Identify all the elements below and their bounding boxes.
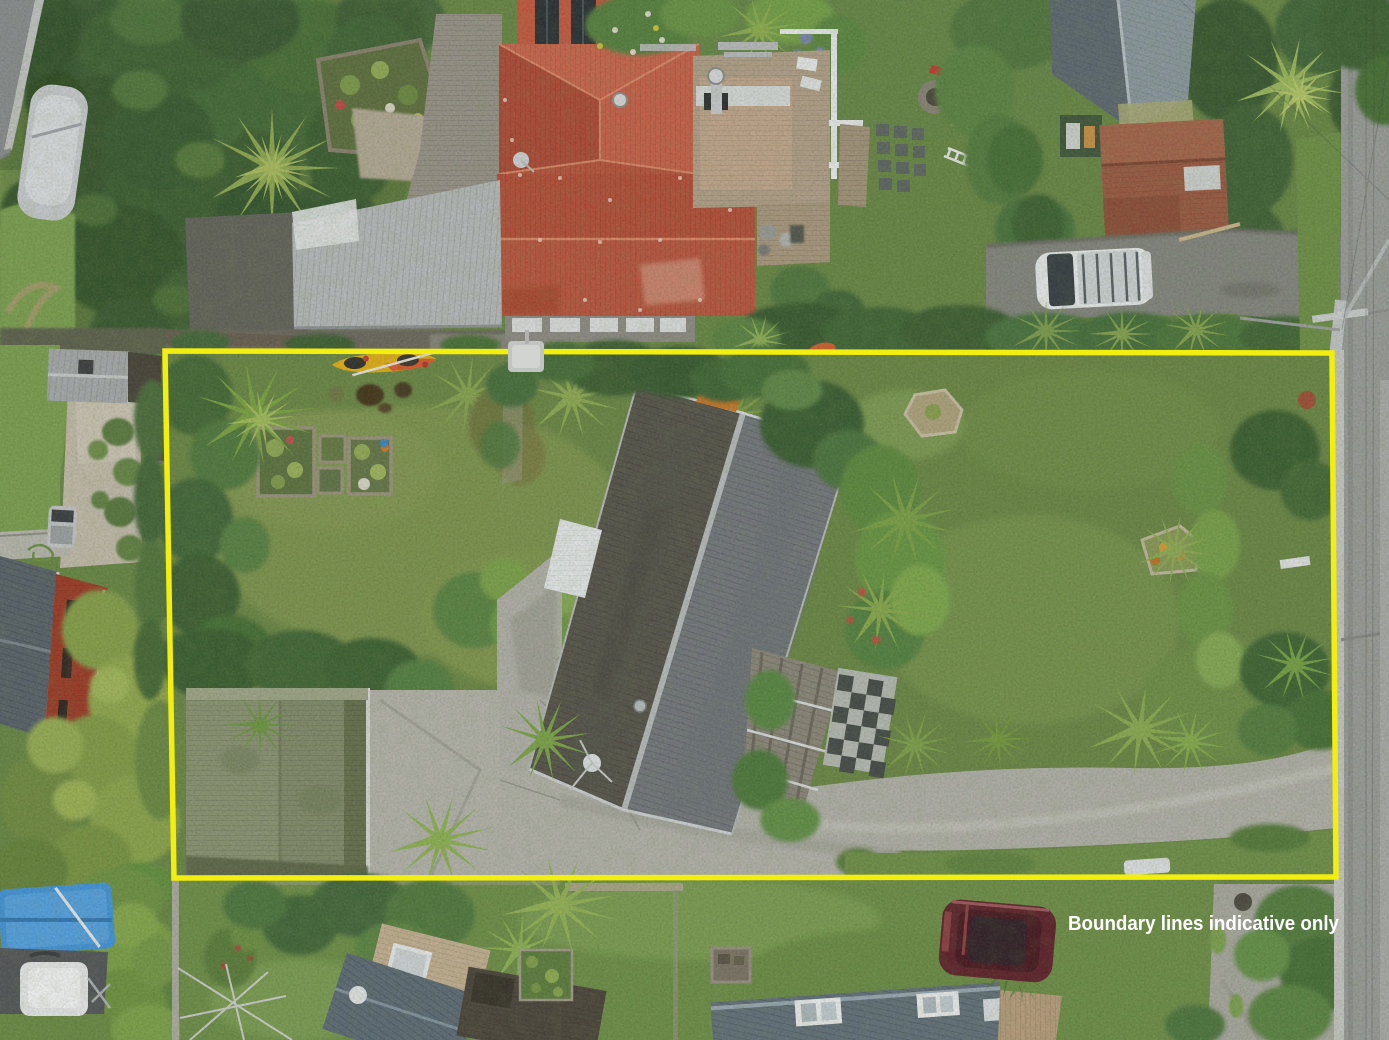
svg-text:Boundary lines indicative only: Boundary lines indicative only: [1068, 912, 1340, 935]
